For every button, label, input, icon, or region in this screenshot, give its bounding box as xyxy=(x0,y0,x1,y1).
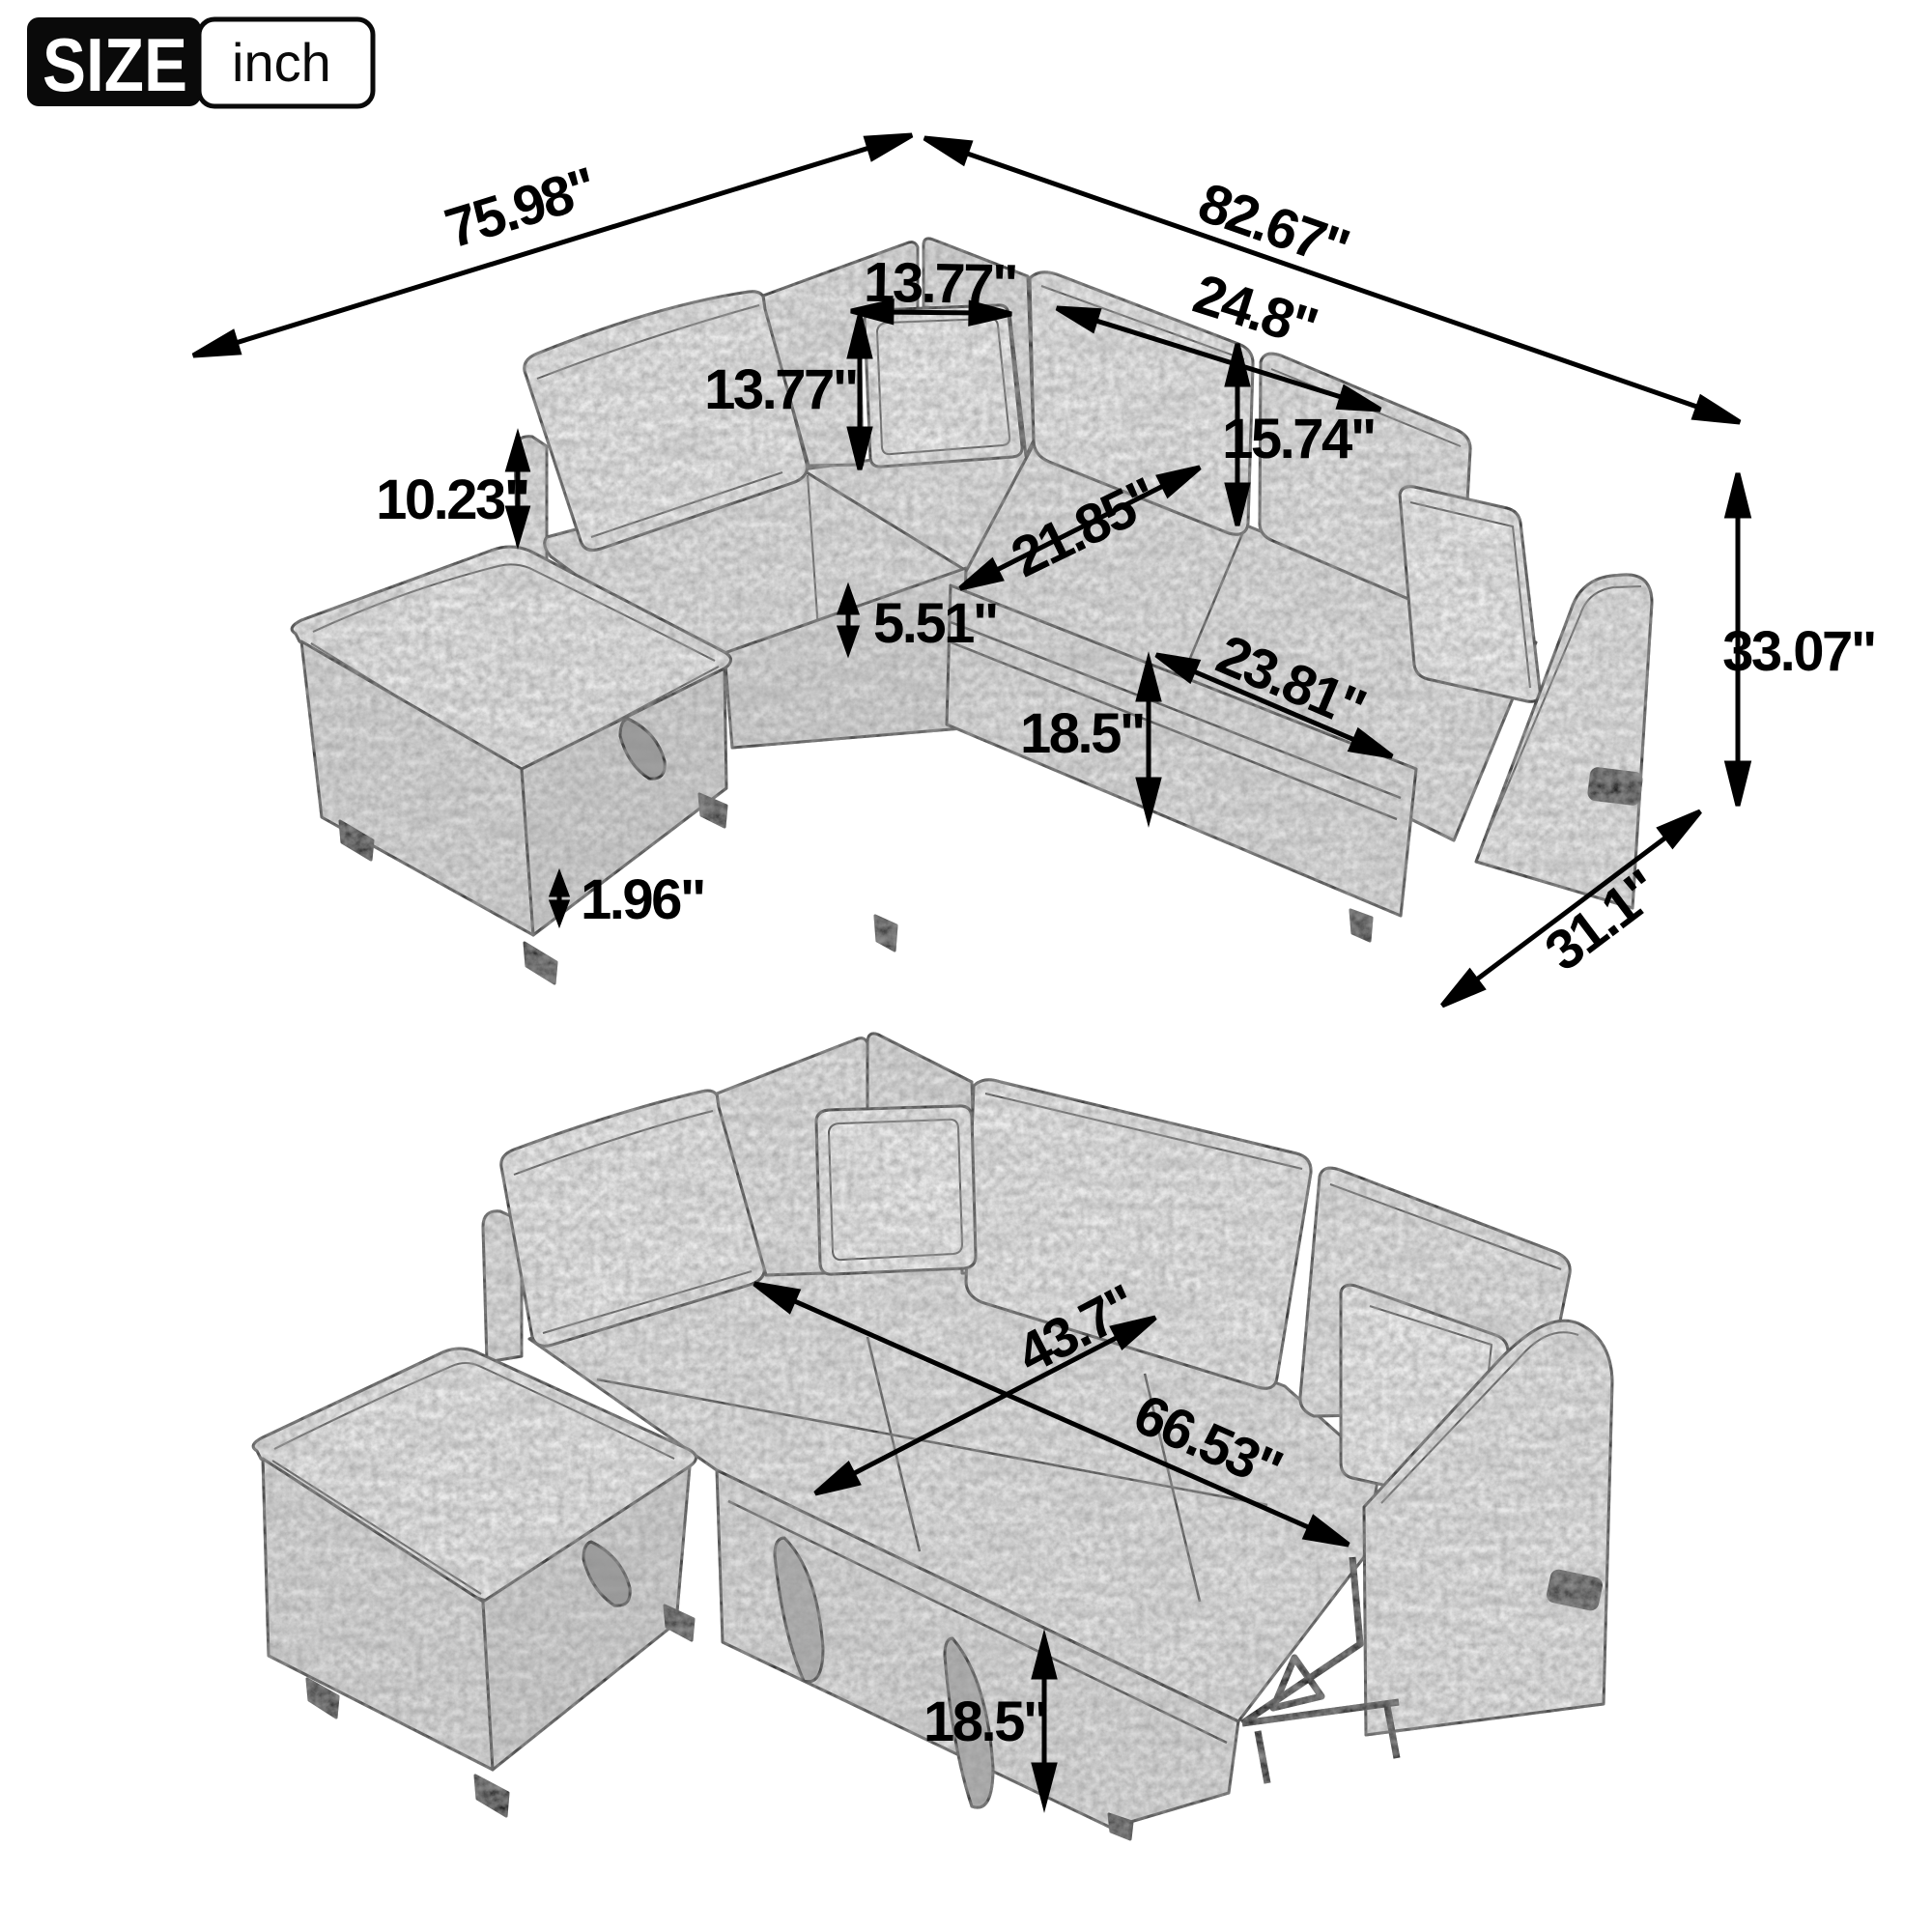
svg-text:5.51": 5.51" xyxy=(873,592,997,655)
svg-text:1.96": 1.96" xyxy=(581,868,704,931)
svg-text:10.23": 10.23" xyxy=(376,469,528,531)
svg-text:15.74": 15.74" xyxy=(1222,408,1375,470)
svg-text:13.77": 13.77" xyxy=(864,251,1017,317)
svg-text:13.77": 13.77" xyxy=(704,358,857,421)
svg-text:18.5": 18.5" xyxy=(1020,702,1144,765)
svg-text:SIZE: SIZE xyxy=(43,22,187,107)
svg-text:18.5": 18.5" xyxy=(923,1690,1047,1753)
svg-text:33.07": 33.07" xyxy=(1722,620,1875,683)
svg-text:inch: inch xyxy=(232,32,331,93)
